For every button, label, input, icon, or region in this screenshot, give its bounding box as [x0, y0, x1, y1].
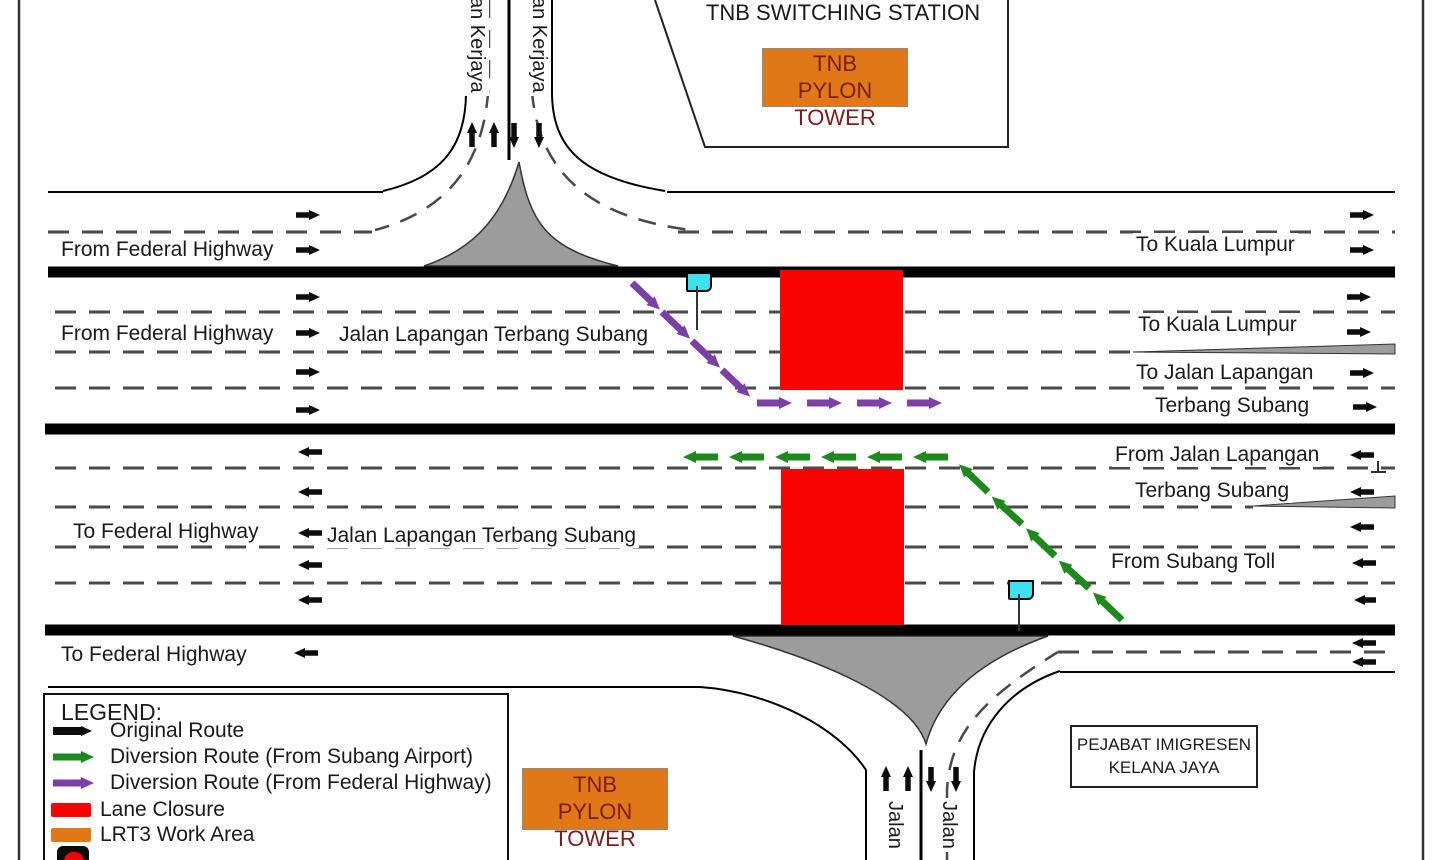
- label-from-jalan-lapangan-2: Terbang Subang: [1132, 479, 1292, 503]
- bottom-junction-outer-left: [700, 687, 866, 860]
- label-kerjaya-right: an Kerjaya: [526, 0, 551, 96]
- bottom-junction-outer-right: [974, 671, 1060, 860]
- lane-closure-swatch: [51, 803, 91, 817]
- legend-item-label: Lane Closure: [100, 798, 225, 822]
- label-jalan-lapangan-upper: Jalan Lapangan Terbang Subang: [336, 323, 651, 347]
- lane-closure-lower: [781, 469, 904, 625]
- traffic-diversion-diagram: TNB SWITCHING STATION TNB PYLON TOWER TN…: [0, 0, 1438, 860]
- label-to-federal-highway-2: To Federal Highway: [58, 643, 250, 667]
- tnb-pylon-tower-bottom-line1: TNB: [523, 771, 667, 798]
- legend-item-label: Diversion Route (From Federal Highway): [110, 771, 492, 795]
- pejabat-line1: PEJABAT IMIGRESEN: [1072, 733, 1256, 756]
- label-from-subang-toll: From Subang Toll: [1108, 550, 1278, 574]
- pejabat-line2: KELANA JAYA: [1072, 756, 1256, 779]
- flag-icon: [686, 272, 712, 292]
- tnb-pylon-tower-top-line1: TNB: [763, 50, 907, 77]
- label-jalan-bottom-left: Jalan: [882, 798, 907, 852]
- label-from-federal-highway-1: From Federal Highway: [58, 238, 276, 262]
- purple-arrow-icon: [51, 774, 101, 792]
- tnb-pylon-tower-box-top: TNB PYLON TOWER: [762, 48, 908, 107]
- green-arrow-icon: [51, 748, 101, 766]
- tnb-pylon-tower-top-line2: PYLON TOWER: [763, 77, 907, 131]
- tnb-switching-station-label: TNB SWITCHING STATION: [700, 1, 986, 25]
- legend-item-label: Diversion Route (From Subang Airport): [110, 745, 473, 769]
- label-to-federal-highway-1: To Federal Highway: [70, 520, 262, 544]
- top-junction-outer-left: [383, 0, 466, 191]
- legend-item-original-route: Original Route: [51, 719, 244, 743]
- label-to-kuala-lumpur-1: To Kuala Lumpur: [1133, 233, 1298, 257]
- tnb-pylon-tower-box-bottom: TNB PYLON TOWER: [522, 768, 668, 830]
- label-to-jalan-lapangan-2: Terbang Subang: [1152, 394, 1312, 418]
- label-from-jalan-lapangan-1: From Jalan Lapangan: [1112, 443, 1322, 467]
- label-from-federal-highway-2: From Federal Highway: [58, 322, 276, 346]
- tnb-pylon-tower-bottom-line2: PYLON TOWER: [523, 798, 667, 852]
- diversion-route-green: [694, 457, 1122, 620]
- legend-item-lane-closure: Lane Closure: [51, 798, 225, 822]
- label-to-jalan-lapangan-1: To Jalan Lapangan: [1133, 361, 1317, 385]
- label-jalan-lapangan-lower: Jalan Lapangan Terbang Subang: [324, 524, 639, 548]
- label-jalan-bottom-right: Jalan: [936, 798, 961, 852]
- top-junction-outer-right: [552, 0, 665, 191]
- legend-item-label: Original Route: [110, 719, 244, 743]
- lane-dashes: [48, 232, 1395, 652]
- lane-closure-upper: [780, 270, 903, 390]
- label-to-kuala-lumpur-2: To Kuala Lumpur: [1135, 313, 1300, 337]
- label-kerjaya-left: an Kerjaya: [464, 0, 489, 96]
- legend-item-diversion-purple: Diversion Route (From Federal Highway): [51, 771, 492, 795]
- merge-wedge-upper: [1133, 344, 1395, 354]
- legend-item-lrt3-work-area: LRT3 Work Area: [51, 823, 254, 847]
- top-junction-gore: [424, 162, 618, 266]
- bottom-junction-gore: [733, 636, 1048, 744]
- legend-item-diversion-green: Diversion Route (From Subang Airport): [51, 745, 473, 769]
- flag-icon: [1008, 580, 1034, 600]
- black-arrow-icon: [51, 722, 101, 740]
- legend-item-traffic-light: [57, 846, 98, 860]
- legend-box: LEGEND: Original Route Diversion Route (…: [43, 693, 509, 860]
- pejabat-imigresen-box: PEJABAT IMIGRESEN KELANA JAYA: [1070, 725, 1258, 788]
- traffic-light-icon: [57, 846, 89, 860]
- work-area-swatch: [51, 828, 91, 842]
- legend-item-label: LRT3 Work Area: [100, 823, 254, 847]
